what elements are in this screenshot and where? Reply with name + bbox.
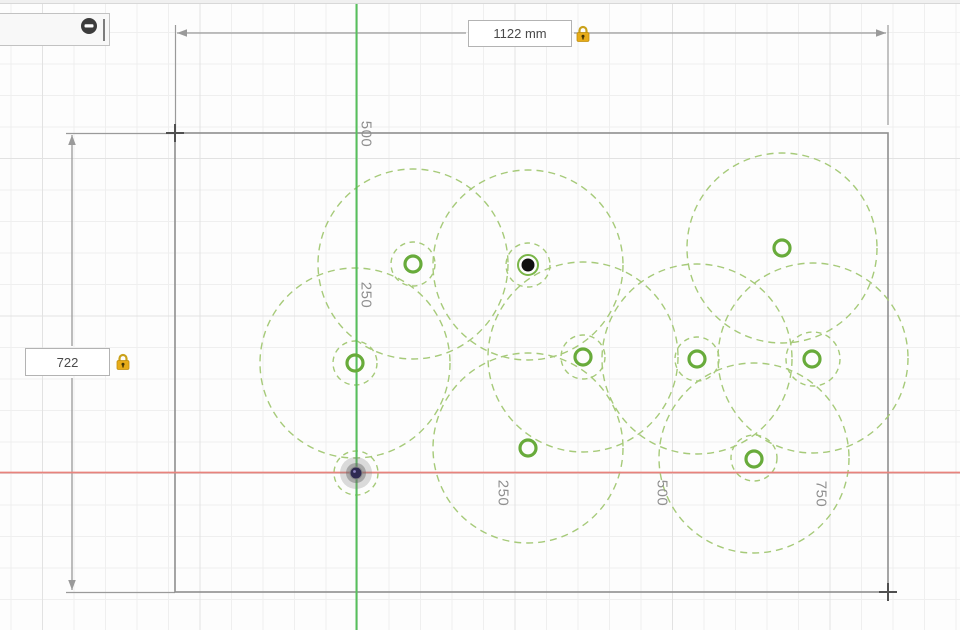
construction-circle-small[interactable] [786, 332, 840, 386]
construction-circle-small[interactable] [675, 337, 719, 381]
dimension-arrow [876, 29, 886, 37]
ruler-label: 250 [495, 480, 512, 507]
construction-circle-small[interactable] [391, 242, 435, 286]
construction-circle[interactable] [687, 153, 877, 343]
construction-circle-small[interactable] [731, 435, 777, 481]
dimension-arrow [68, 135, 76, 145]
sketch-rectangle[interactable] [175, 133, 888, 592]
width-lock-icon[interactable] [574, 25, 592, 43]
construction-circle[interactable] [318, 169, 508, 359]
construction-circle[interactable] [260, 268, 450, 458]
hole-point[interactable] [347, 355, 363, 371]
origin-highlight [353, 470, 356, 473]
hole-point[interactable] [774, 240, 790, 256]
construction-circle-small[interactable] [333, 341, 377, 385]
height-dimension-value: 722 [57, 355, 79, 370]
hole-point[interactable] [746, 451, 762, 467]
selected-point[interactable] [522, 259, 535, 272]
ruler-label: 500 [654, 480, 671, 507]
sketch-geometry-layer [0, 0, 960, 630]
ruler-label: 750 [813, 481, 830, 508]
hole-point[interactable] [405, 256, 421, 272]
origin-point[interactable] [350, 467, 362, 479]
construction-circle[interactable] [659, 363, 849, 553]
canvas-top-edge [0, 0, 960, 4]
floating-panel-fragment[interactable] [0, 13, 110, 46]
height-lock-icon[interactable] [114, 353, 132, 371]
dimension-arrow [68, 580, 76, 590]
sketch-canvas: 500250250500750 1122 mm 722 [0, 0, 960, 630]
ruler-label: 500 [358, 121, 375, 148]
construction-circle[interactable] [602, 264, 792, 454]
construction-circle[interactable] [488, 262, 678, 452]
construction-circle[interactable] [433, 353, 623, 543]
width-dimension-value: 1122 mm [493, 26, 546, 41]
dimension-arrow [177, 29, 187, 37]
hole-point[interactable] [689, 351, 705, 367]
construction-circle[interactable] [718, 263, 908, 453]
hole-point[interactable] [575, 349, 591, 365]
text-cursor-icon [103, 19, 105, 41]
ruler-label: 250 [358, 282, 375, 309]
height-dimension-input[interactable]: 722 [25, 348, 110, 376]
hole-point[interactable] [520, 440, 536, 456]
width-dimension-input[interactable]: 1122 mm [468, 20, 572, 47]
hole-point[interactable] [804, 351, 820, 367]
circle-minus-icon[interactable] [80, 17, 98, 35]
